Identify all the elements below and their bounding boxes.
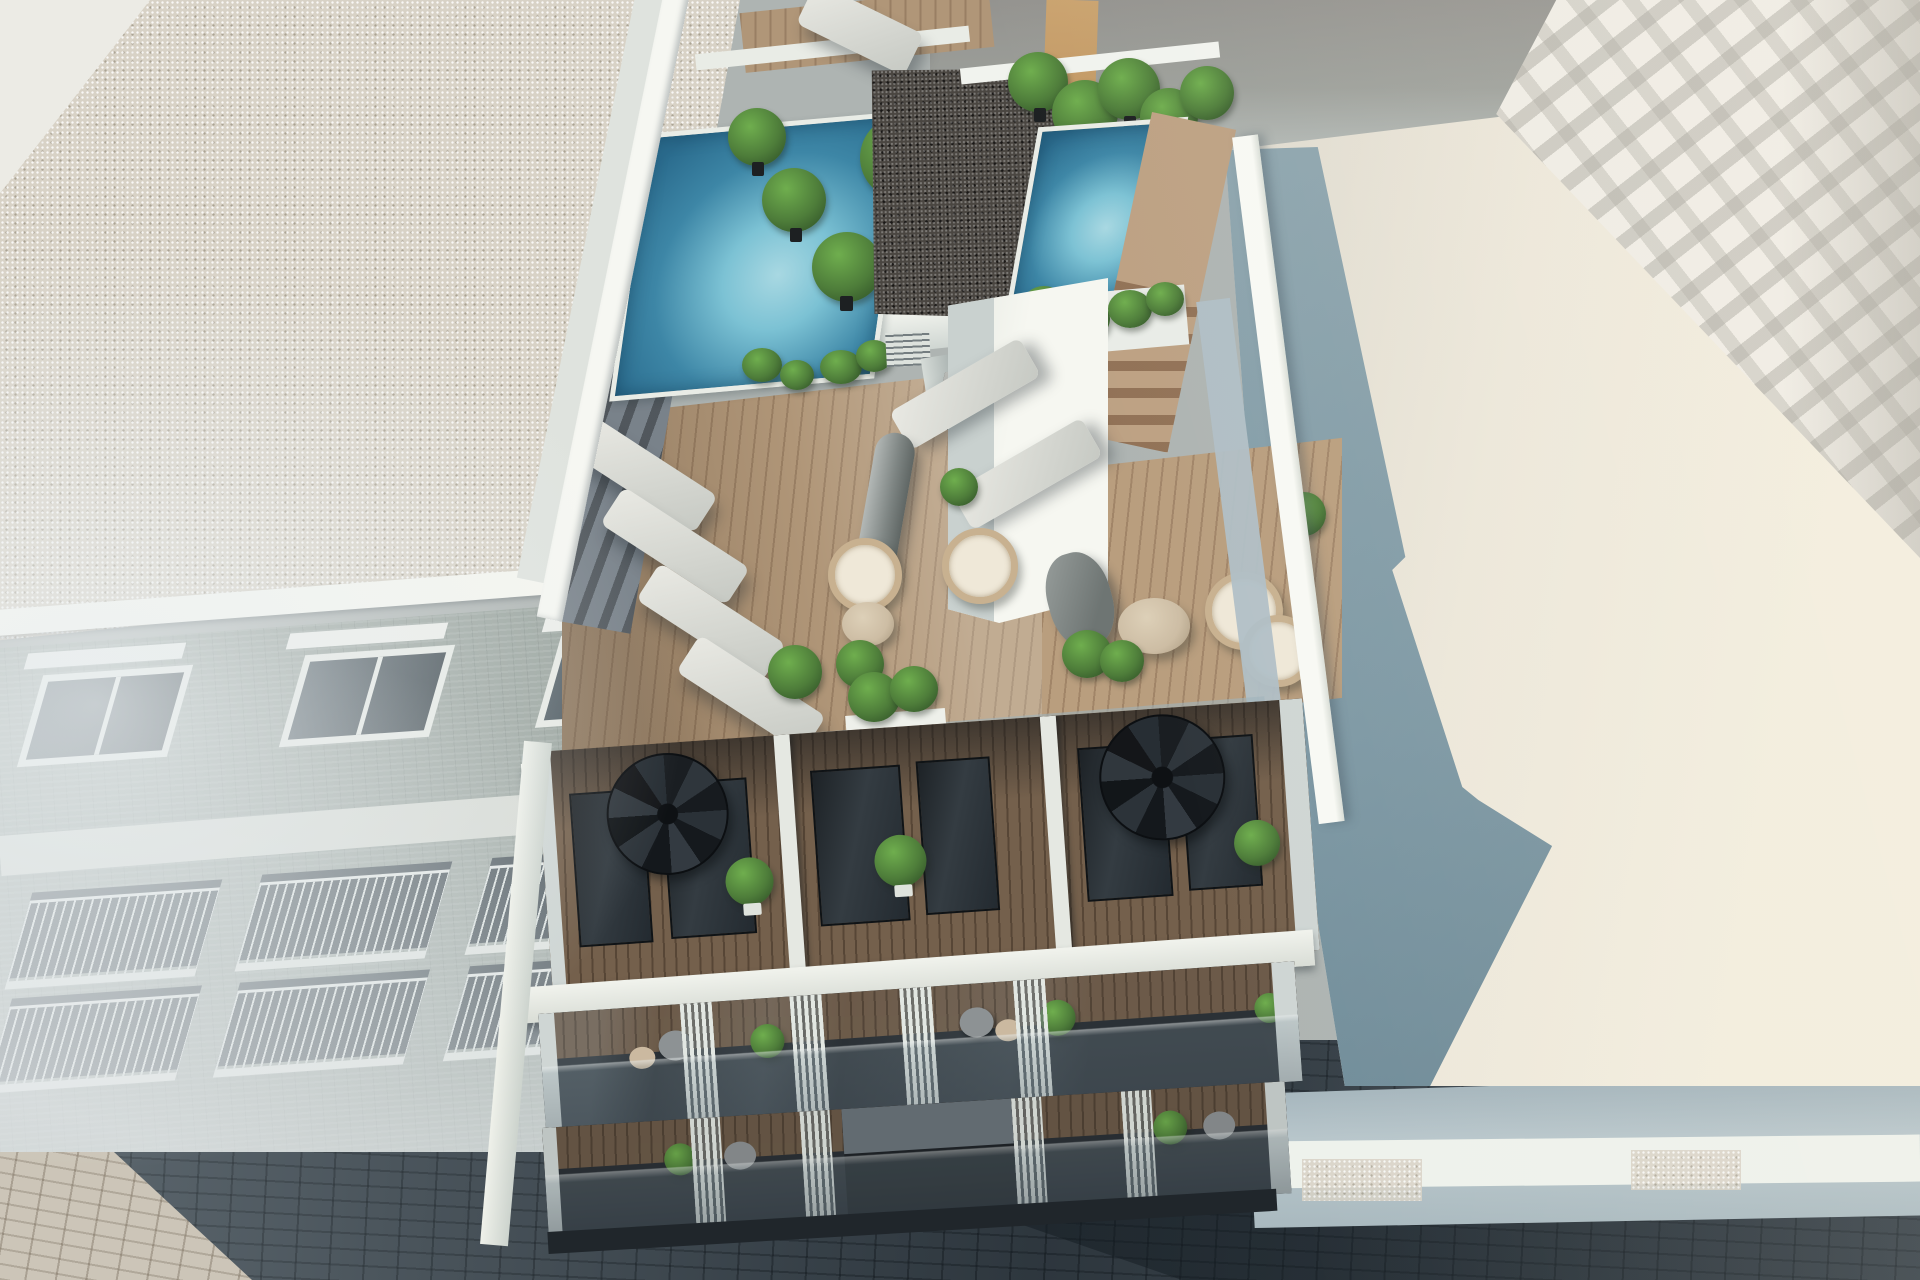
banana-plant [762, 168, 826, 232]
neighbor-facade-texture-patch [1302, 1159, 1422, 1201]
neighbor-facade-strip [1248, 1072, 1920, 1228]
plant-pot [1034, 108, 1046, 122]
potted-plant [768, 645, 822, 699]
wicker-chair [828, 538, 902, 612]
neighbor-facade-texture-patch [1631, 1150, 1741, 1190]
planter-shrub [1146, 282, 1184, 316]
poolside-shrub [780, 360, 814, 390]
glass-door [916, 756, 1001, 915]
plant-pot [790, 228, 802, 242]
plant-pot-white [743, 903, 762, 916]
plant-pot [840, 296, 853, 311]
round-table [842, 602, 894, 646]
parapet-shrub [890, 666, 938, 712]
banana-plant [812, 232, 882, 302]
render-scene [0, 0, 1920, 1280]
banana-plant [1180, 66, 1234, 120]
plant-pot-white [894, 884, 913, 897]
wicker-chair [942, 528, 1018, 604]
banana-plant [728, 108, 786, 166]
parapet-shrub [1100, 640, 1144, 682]
small-palm [940, 468, 978, 506]
poolside-shrub [742, 348, 782, 382]
plant-pot [752, 162, 764, 176]
